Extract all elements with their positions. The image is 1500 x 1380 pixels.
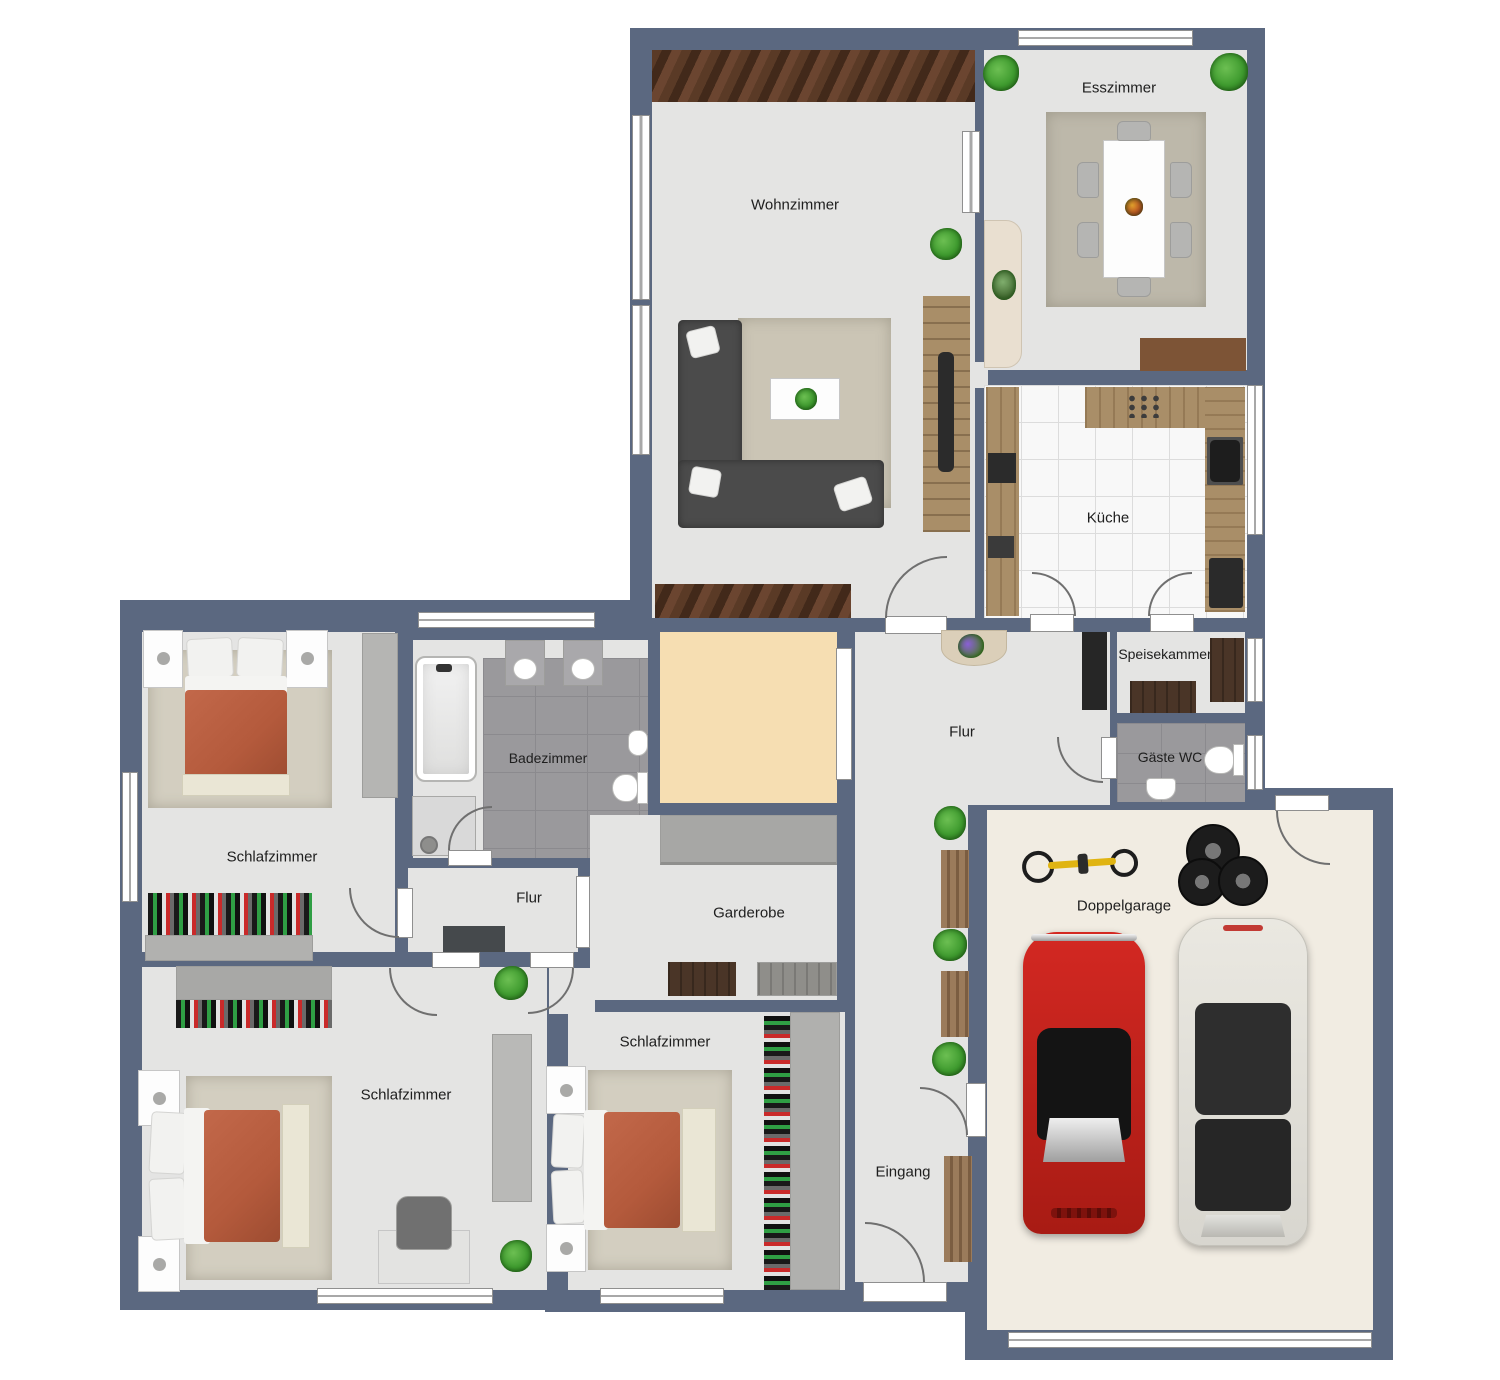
dining-chair (1117, 121, 1151, 141)
pantry-shelf-right (1210, 638, 1244, 702)
flur-label: Flur (949, 724, 975, 741)
nightstand-knob (157, 652, 170, 665)
schlafzimmer-3-door (530, 952, 574, 968)
speisekammer-label: Speisekammer (1118, 646, 1211, 662)
bath-urinal (628, 730, 648, 756)
wohnzimmer-window-left-2 (632, 305, 650, 455)
badezimmer-door (448, 850, 492, 866)
kueche-counter-left (986, 387, 1019, 616)
bathtub (415, 656, 477, 782)
eingang-label: Eingang (875, 1164, 930, 1181)
cooker-hood-vent (1126, 394, 1162, 418)
badezimmer-window-top (418, 612, 595, 628)
schlafzimmer-2-plant (500, 1240, 532, 1272)
kitchen-appliance (988, 536, 1014, 558)
clothes-rail-schlafzimmer-1 (148, 893, 312, 937)
bed-pillow (236, 637, 284, 679)
schlafzimmer-1-label: Schlafzimmer (227, 849, 318, 866)
garderobe-cabinet-dark (668, 962, 736, 996)
schlafzimmer-2-plant (494, 966, 528, 1000)
garderobe-cabinet-gray (757, 962, 837, 996)
bed-duvet (204, 1110, 280, 1242)
esszimmer-window-top (1018, 30, 1193, 46)
clothes-rail-schlafzimmer-2 (176, 1000, 332, 1028)
flur-plant-3 (932, 1042, 966, 1076)
parquet-strip-top (652, 50, 975, 102)
abstellraum-floor (660, 632, 837, 803)
dining-chair (1077, 222, 1099, 258)
flur-stool-1 (941, 850, 969, 928)
schlafzimmer-1-window (122, 772, 138, 902)
bath-toilet (612, 774, 638, 802)
bed-pillow (148, 1177, 187, 1241)
schlafzimmer-3-label: Schlafzimmer (620, 1034, 711, 1051)
floor-plan: Wohnzimmer Esszimmer Küche Speisekammer (0, 0, 1500, 1380)
garderobe-label: Garderobe (713, 905, 785, 922)
esszimmer-plant-left (983, 55, 1019, 91)
bicycle-icon (1020, 836, 1139, 892)
parquet-strip-bottom (655, 584, 851, 618)
bed-duvet (604, 1112, 680, 1228)
schlafzimmer-2-door (432, 952, 480, 968)
schlafzimmer-2-window (317, 1288, 493, 1304)
front-door (863, 1282, 947, 1302)
bed-pillow (148, 1111, 187, 1175)
clothes-rail-shelf (145, 935, 313, 961)
nightstand-knob (153, 1258, 166, 1271)
bed-pillow (186, 637, 234, 679)
flur-klein-label: Flur (516, 890, 542, 907)
closet-schlafzimmer-2 (176, 966, 332, 1000)
schlafzimmer-1-door (397, 888, 413, 938)
garage-side-door (1275, 795, 1329, 811)
nightstand-knob (153, 1092, 166, 1105)
bed-pillow (551, 1169, 586, 1225)
fruit-bowl (1125, 198, 1143, 216)
bath-toilet-tank (637, 772, 648, 804)
bed-1 (185, 632, 287, 794)
esszimmer-label: Esszimmer (1082, 80, 1156, 97)
flur-console-flowers (958, 634, 984, 658)
car-sunroof (1195, 1003, 1291, 1115)
car-tail-strip (1223, 925, 1263, 931)
bed-2 (148, 1108, 320, 1244)
car-windshield (1043, 1118, 1125, 1162)
esszimmer-sideboard (1140, 338, 1246, 371)
abstellraum-sliding-door (836, 648, 852, 780)
bed-duvet (185, 690, 287, 782)
gaeste-wc-label: Gäste WC (1138, 749, 1203, 765)
bed-footboard (682, 1108, 716, 1232)
flur-tall-cabinet (1082, 632, 1107, 710)
wohnzimmer-door (885, 616, 947, 634)
badezimmer-label: Badezimmer (509, 750, 588, 766)
pantry-shelf-bottom (1130, 681, 1196, 713)
car-sunroof (1195, 1119, 1291, 1211)
wohnzimmer-label: Wohnzimmer (751, 197, 839, 214)
garage-connecting-door (966, 1083, 986, 1137)
car-windshield (1201, 1215, 1285, 1237)
bath-sink-1 (513, 658, 537, 680)
garderobe-closet (660, 815, 837, 865)
clothes-rail-schlafzimmer-3 (764, 1012, 790, 1290)
eingang-bench (944, 1156, 972, 1262)
nightstand-knob (560, 1084, 573, 1097)
flur-stool-2 (941, 971, 969, 1037)
flur-plant-2 (933, 929, 967, 961)
kueche-label: Küche (1087, 510, 1130, 527)
flur-klein-sideboard (443, 926, 505, 952)
bike-pedals (1077, 853, 1088, 874)
coffee-machine (988, 453, 1016, 483)
kitchen-sink (1209, 558, 1243, 608)
red-car (1023, 932, 1145, 1234)
flur-plant-1 (934, 806, 966, 840)
shower-drain (420, 836, 438, 854)
kueche-window-right (1247, 385, 1263, 535)
car-bumper (1031, 934, 1137, 941)
garderobe-sliding-door (576, 876, 590, 948)
dining-chair (1170, 162, 1192, 198)
tire (1218, 856, 1268, 906)
cabinet-plant (992, 270, 1016, 300)
bed-pillow (551, 1113, 586, 1169)
wc-toilet (1204, 746, 1234, 774)
closet-strip-schlafzimmer-3 (790, 1012, 840, 1290)
wohnzimmer-plant (930, 228, 962, 260)
esszimmer-window-left (962, 131, 980, 213)
dining-chair (1117, 277, 1151, 297)
esszimmer-plant-right (1210, 53, 1248, 91)
car-grille (1051, 1208, 1117, 1218)
bed-footboard (282, 1104, 310, 1248)
stove (1207, 437, 1243, 485)
wc-toilet-tank (1233, 744, 1244, 776)
speisekammer-window (1247, 638, 1263, 702)
kueche-speisekammer-door (1150, 614, 1194, 632)
wc-window (1247, 735, 1263, 790)
desk-chair (396, 1196, 452, 1250)
wardrobe-schlafzimmer-1 (362, 633, 398, 798)
doppelgarage-label: Doppelgarage (1077, 898, 1171, 915)
dining-chair (1077, 162, 1099, 198)
sofa-pillow (688, 466, 722, 499)
dining-chair (1170, 222, 1192, 258)
schlafzimmer-3-window (600, 1288, 724, 1304)
nightstand-knob (301, 652, 314, 665)
bathtub-faucet (436, 664, 452, 672)
schlafzimmer-2-label: Schlafzimmer (361, 1087, 452, 1104)
bed-footboard (182, 774, 290, 796)
garage-door (1008, 1332, 1372, 1348)
white-car (1178, 918, 1308, 1246)
closet-right-schlafzimmer-2 (492, 1034, 532, 1202)
wc-sink (1146, 778, 1176, 800)
bed-3 (550, 1110, 720, 1230)
coffee-table-plant (795, 388, 817, 410)
nightstand-knob (560, 1242, 573, 1255)
tv-panel (938, 352, 954, 472)
wc-door (1101, 737, 1117, 779)
kueche-flur-door (1030, 614, 1074, 632)
wohnzimmer-window-left-1 (632, 115, 650, 300)
bath-sink-2 (571, 658, 595, 680)
